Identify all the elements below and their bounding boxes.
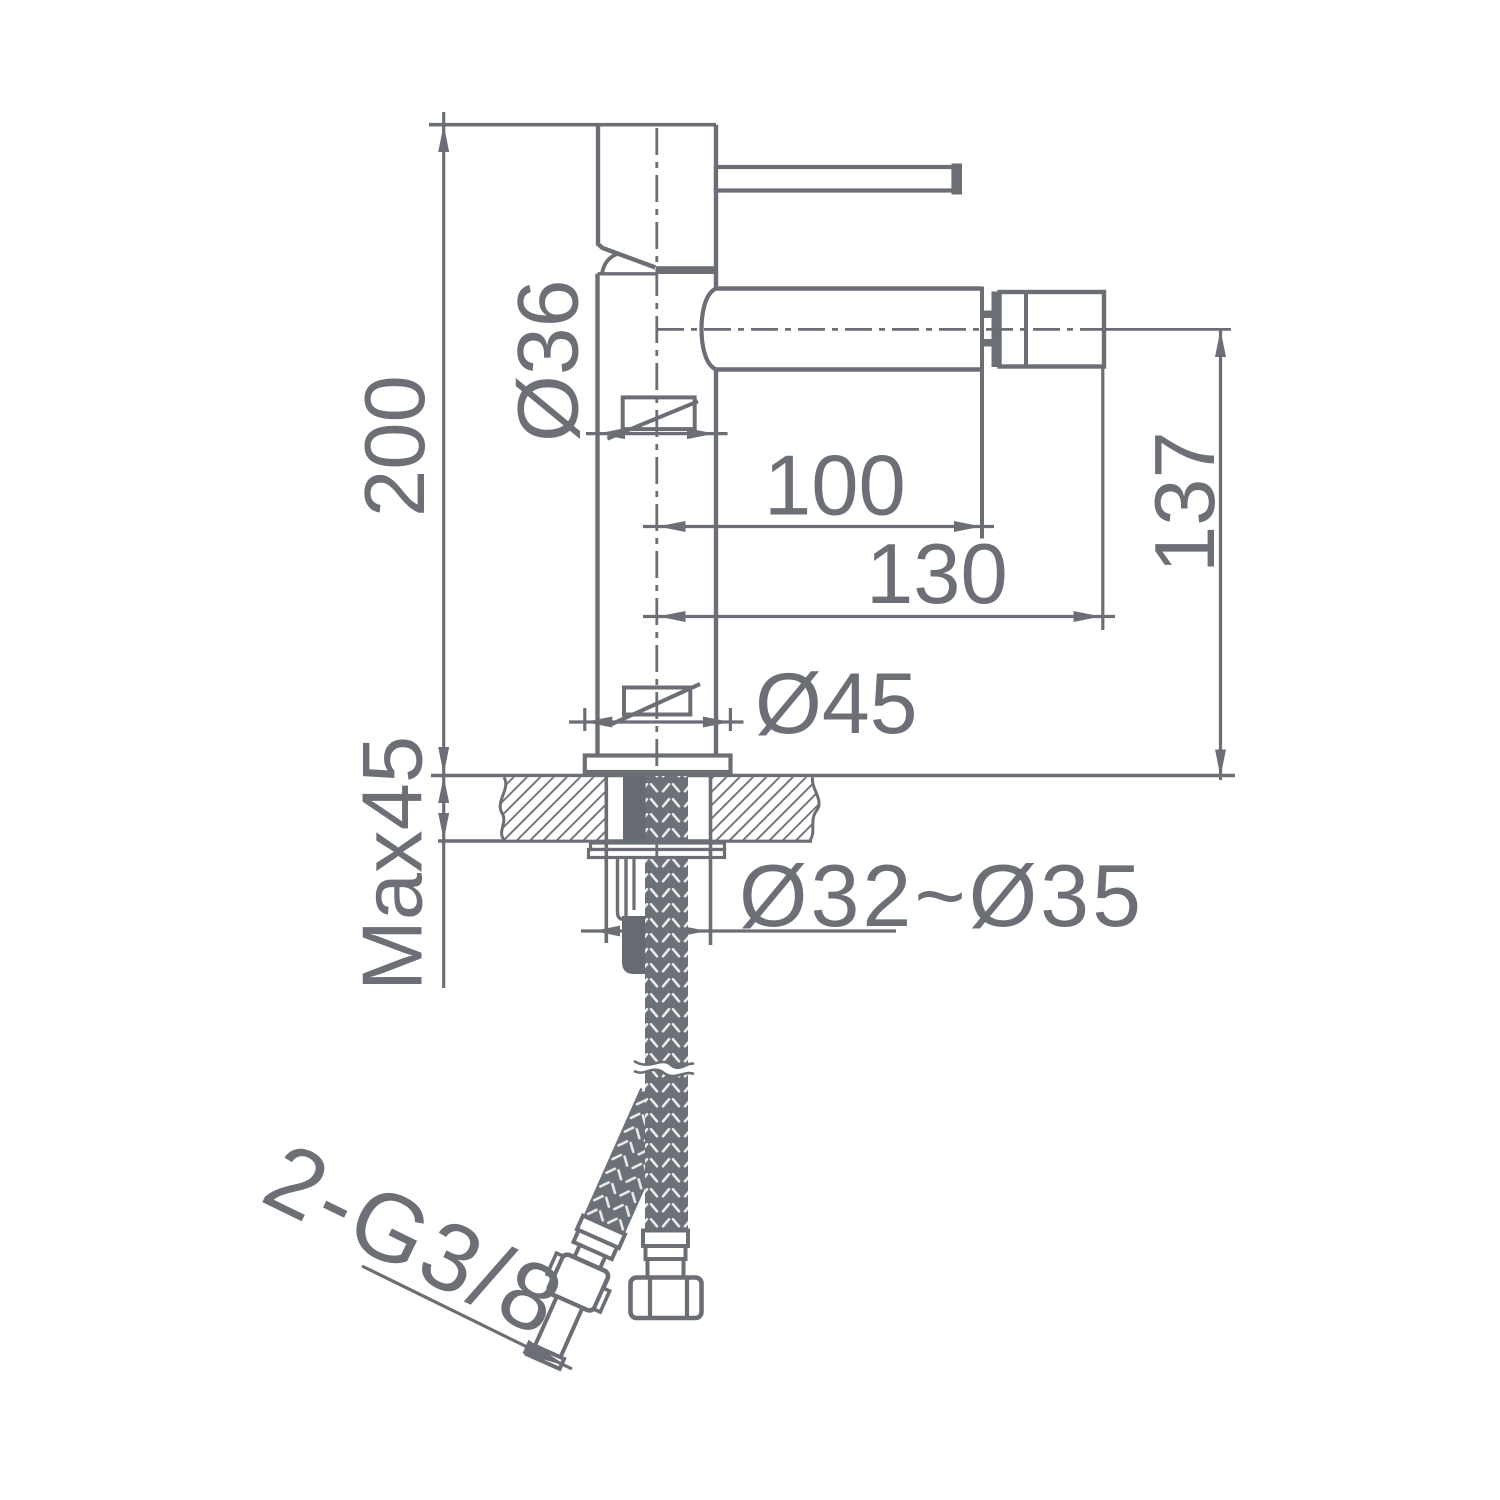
svg-text:130: 130 <box>866 527 1008 622</box>
svg-text:Ø36: Ø36 <box>501 279 597 442</box>
svg-text:Ø32~Ø35: Ø32~Ø35 <box>739 846 1144 945</box>
svg-text:2-G3/8: 2-G3/8 <box>249 1123 581 1358</box>
svg-text:Max45: Max45 <box>346 736 441 991</box>
svg-text:200: 200 <box>348 375 443 517</box>
svg-text:100: 100 <box>764 438 906 533</box>
svg-text:137: 137 <box>1138 431 1233 573</box>
svg-text:Ø45: Ø45 <box>755 656 918 752</box>
